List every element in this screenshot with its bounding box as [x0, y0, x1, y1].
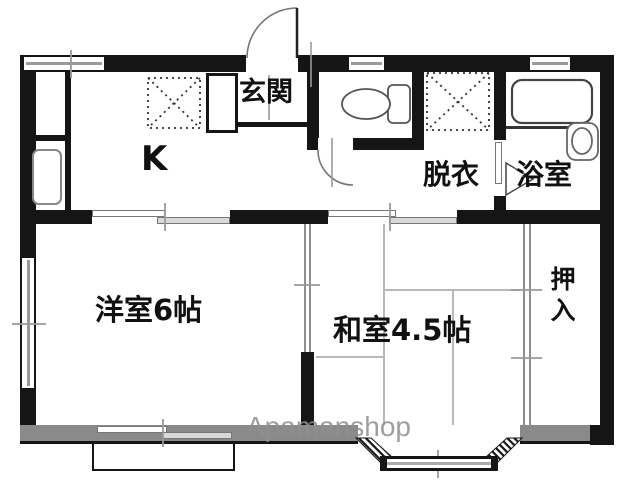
wall-top — [20, 55, 614, 72]
entrance-label: 玄関 — [239, 79, 293, 106]
western-room-side-window-glass-line — [27, 260, 30, 386]
toilet-window-glass-line — [351, 62, 382, 65]
balcony-window-panel-left — [97, 426, 167, 433]
kitchen-label: K — [141, 142, 167, 176]
wall-entrance-south — [238, 122, 308, 127]
room-divider-fusuma-line-2 — [309, 224, 311, 352]
western-room-label: 洋室6帖 — [95, 296, 202, 325]
closet-fusuma-line-2 — [529, 224, 531, 425]
bathroom-door-leaf — [495, 142, 502, 184]
washer-space-dressing-icon — [427, 73, 489, 130]
washer-space-kitchen-icon — [148, 78, 200, 128]
kitchen-window — [24, 57, 104, 70]
closet-fusuma — [520, 224, 534, 425]
toilet-door-opening — [318, 138, 353, 150]
toilet-window — [349, 57, 384, 70]
balcony — [92, 440, 235, 471]
room-divider-fusuma-line-1 — [304, 224, 306, 352]
wall-toilet-right — [412, 72, 424, 150]
bathroom-window — [530, 57, 570, 70]
kitchen-appliance-icon — [33, 150, 61, 204]
closet-fusuma-line-1 — [523, 224, 525, 425]
room-divider-fusuma — [301, 224, 314, 352]
wall-right — [600, 55, 614, 445]
western-room-side-window — [22, 258, 34, 388]
balcony-window-panel-right — [162, 432, 232, 439]
wall-kitchen-counter-divider — [65, 72, 71, 210]
bathtub-icon — [512, 80, 592, 123]
floorplan-canvas: K 玄関 脱衣 浴室 洋室6帖 和室4.5帖 押入 Apamanshop — [0, 0, 624, 480]
dressing-label: 脱衣 — [423, 161, 479, 189]
bathtub-ledge — [506, 126, 570, 129]
wall-bottom-right-corner — [590, 425, 614, 445]
sliding-door-kitchen-western-panel-right — [157, 217, 230, 224]
bathroom-window-glass-line — [532, 62, 568, 65]
entrance-door-opening — [246, 55, 298, 72]
toilet-icon — [342, 85, 410, 123]
watermark-text: Apamanshop — [246, 413, 411, 441]
wash-basin-icon — [567, 123, 598, 160]
japanese-room-label: 和室4.5帖 — [333, 316, 471, 345]
kitchen-window-glass-line — [26, 62, 102, 65]
closet-label: 押入 — [549, 266, 574, 350]
bathroom-label: 浴室 — [516, 161, 572, 189]
wall-kitchen-counter-shelf — [20, 135, 67, 141]
shoe-cabinet — [206, 73, 238, 133]
sliding-door-hall-japanese-panel-right — [389, 217, 457, 224]
sliding-door-hall-japanese-panel-left — [328, 210, 396, 217]
sliding-door-kitchen-western-panel-left — [92, 210, 165, 217]
